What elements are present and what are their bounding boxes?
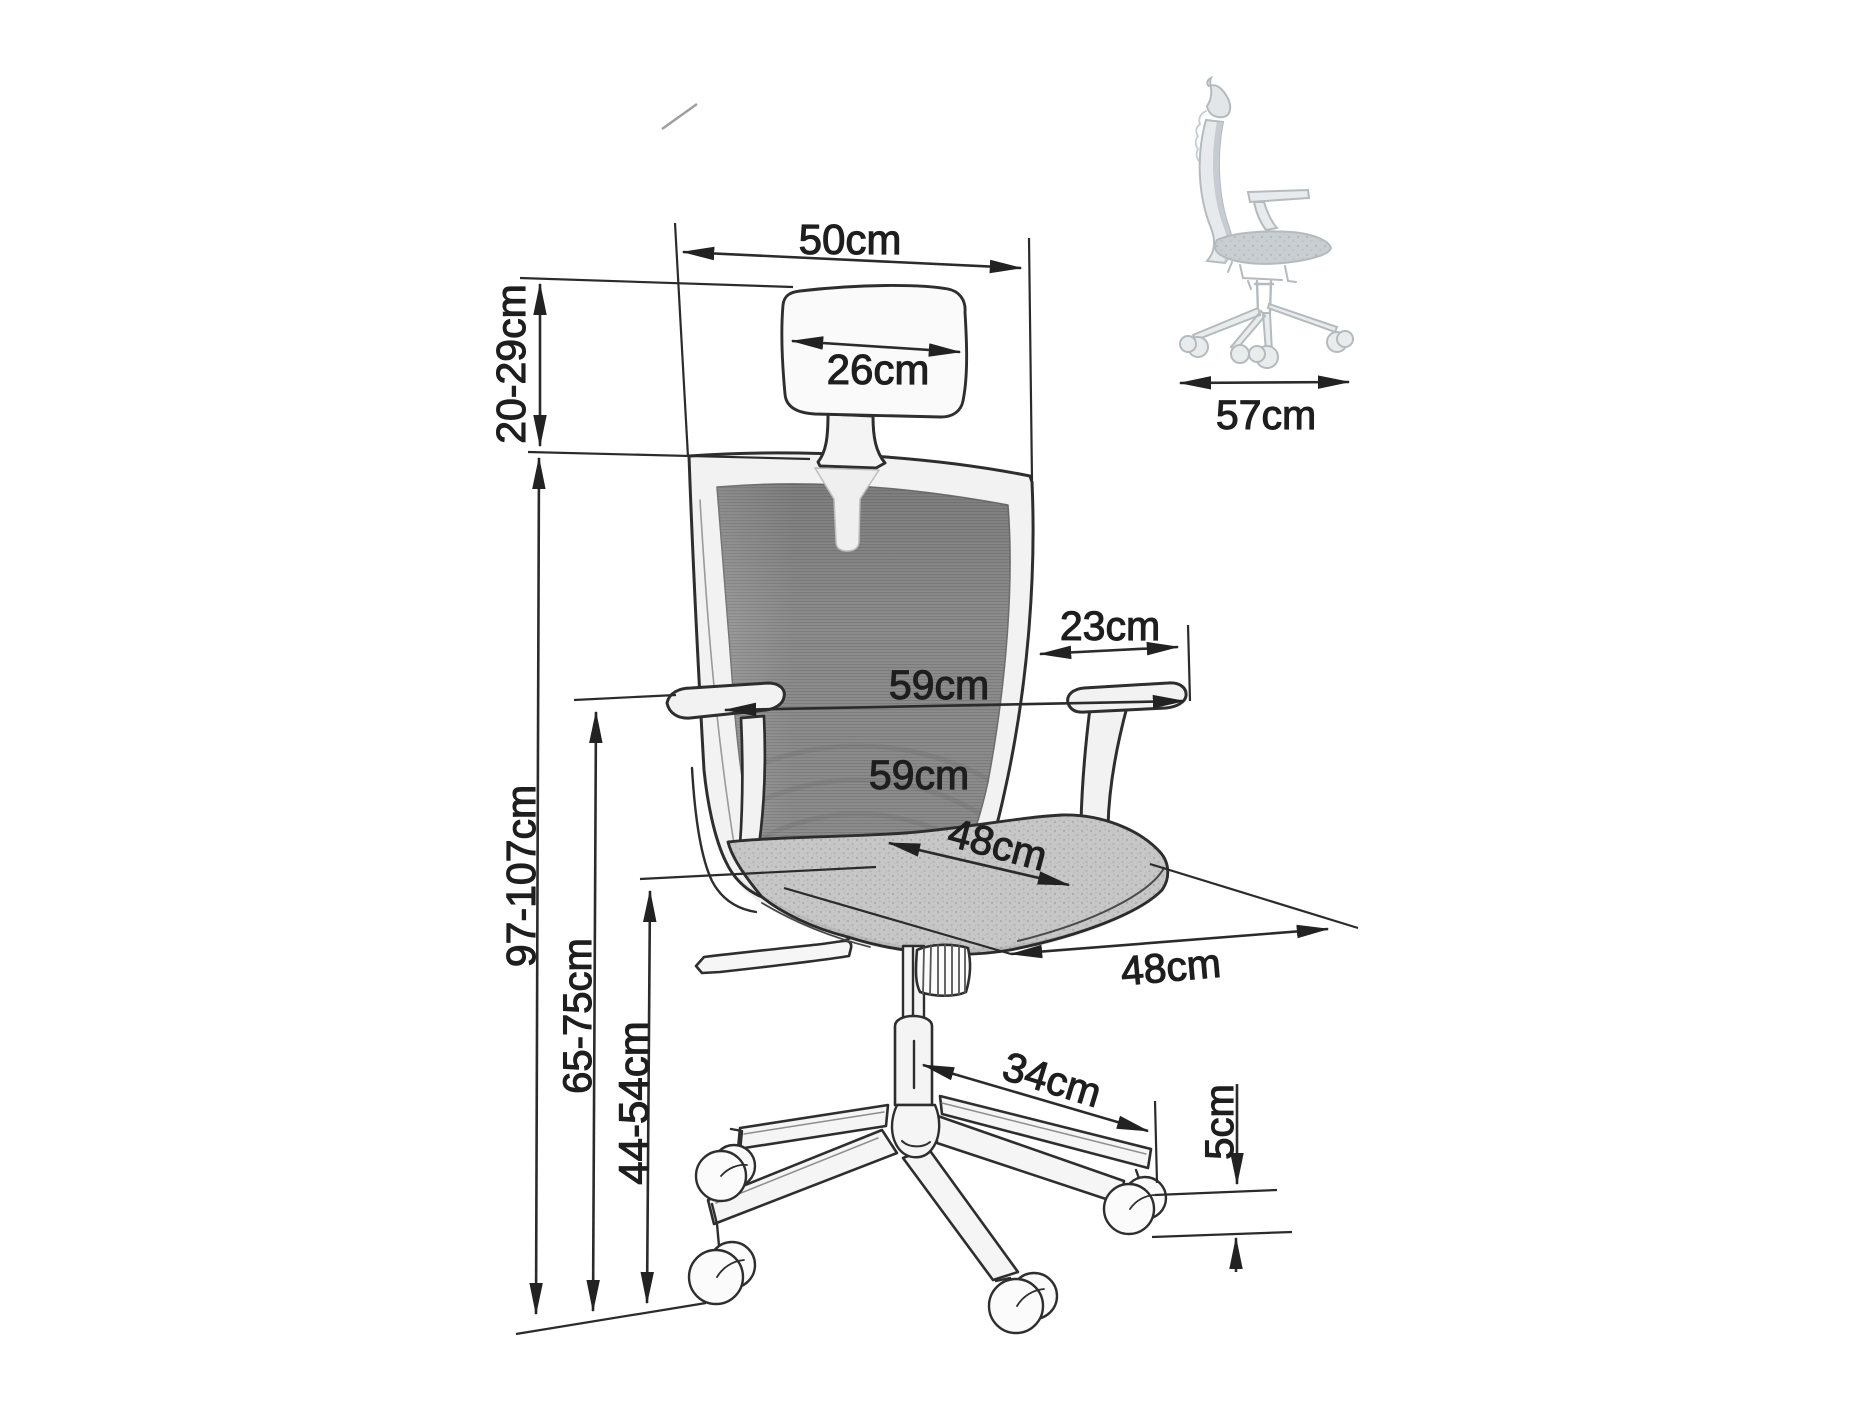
svg-text:57cm: 57cm xyxy=(1216,392,1316,438)
svg-text:26cm: 26cm xyxy=(827,346,930,393)
svg-text:59cm: 59cm xyxy=(869,752,969,798)
svg-text:65-75cm: 65-75cm xyxy=(556,938,600,1094)
svg-text:5cm: 5cm xyxy=(1198,1084,1242,1160)
svg-text:23cm: 23cm xyxy=(1060,603,1160,649)
svg-text:59cm: 59cm xyxy=(889,662,989,708)
svg-text:48cm: 48cm xyxy=(1119,940,1223,995)
svg-text:20-29cm: 20-29cm xyxy=(488,284,534,444)
svg-text:97-107cm: 97-107cm xyxy=(498,785,544,967)
svg-text:50cm: 50cm xyxy=(799,216,902,263)
svg-text:44-54cm: 44-54cm xyxy=(610,1021,657,1184)
